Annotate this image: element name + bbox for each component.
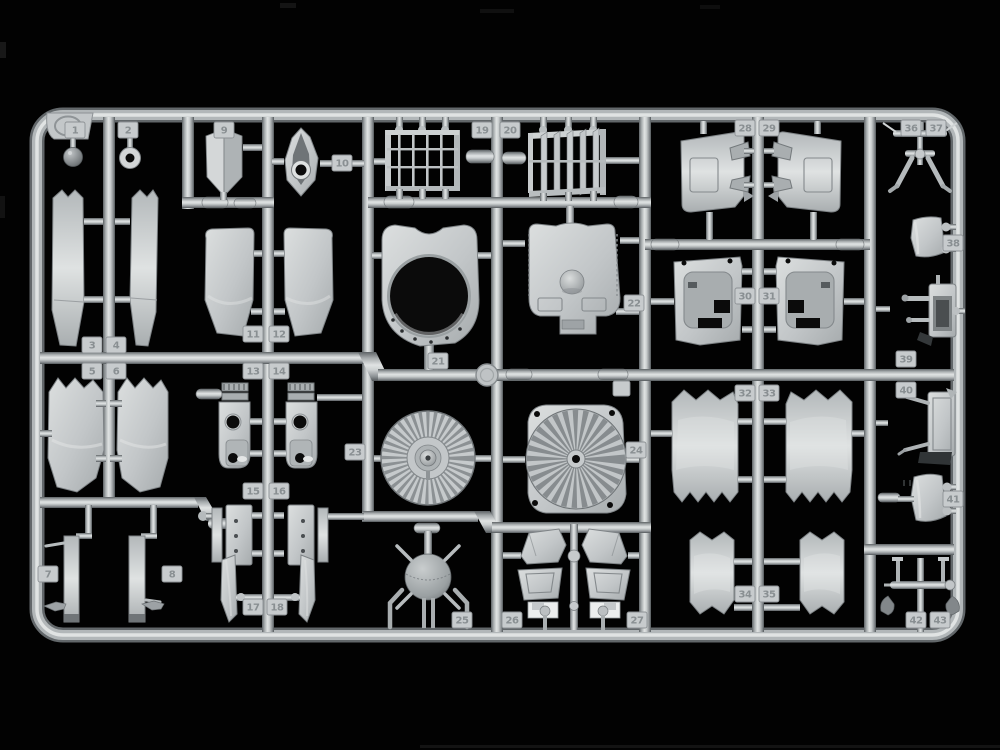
svg-text:41: 41 bbox=[947, 495, 960, 506]
sprue-photo: V bbox=[0, 0, 1000, 750]
part-intake-ring bbox=[372, 225, 491, 370]
svg-text:2: 2 bbox=[125, 126, 132, 137]
part-duct-panel-right bbox=[786, 390, 852, 502]
part-number-tag-31: 31 bbox=[759, 288, 779, 304]
part-number-tag-19: 19 bbox=[472, 122, 492, 138]
part-notched-panel-left bbox=[690, 532, 734, 614]
runner-vertical-a bbox=[103, 117, 115, 503]
svg-text:6: 6 bbox=[113, 367, 120, 378]
svg-text:10: 10 bbox=[336, 159, 349, 170]
part-number-tag-17: 17 bbox=[243, 599, 263, 615]
part-number-tag-13: 13 bbox=[243, 363, 263, 379]
svg-text:40: 40 bbox=[900, 386, 913, 397]
part-number-tag-36: 36 bbox=[901, 120, 921, 136]
part-number-tag-28: 28 bbox=[735, 120, 755, 136]
part-number-tag-1: 1 bbox=[65, 122, 85, 138]
part-number-tag-39: 39 bbox=[896, 351, 916, 367]
part-number-tag-23: 23 bbox=[345, 444, 365, 460]
svg-text:4: 4 bbox=[113, 341, 120, 352]
part-seat-frame bbox=[876, 388, 957, 487]
part-chevron-fairing bbox=[206, 129, 262, 200]
svg-text:38: 38 bbox=[947, 239, 960, 250]
part-number-tag-21: 21 bbox=[428, 353, 448, 369]
part-intake-outer-panel-left bbox=[205, 228, 254, 336]
runner-mid-left bbox=[40, 352, 366, 364]
svg-text:39: 39 bbox=[900, 355, 913, 366]
part-number-tag-10: 10 bbox=[332, 155, 352, 171]
part-blade-left bbox=[52, 190, 84, 346]
svg-text:12: 12 bbox=[273, 330, 286, 341]
part-actuator-right bbox=[288, 505, 364, 565]
part-number-tag-35: 35 bbox=[759, 586, 779, 602]
svg-text:27: 27 bbox=[631, 616, 644, 627]
svg-text:34: 34 bbox=[739, 590, 752, 601]
svg-text:9: 9 bbox=[221, 126, 228, 137]
svg-text:17: 17 bbox=[247, 603, 260, 614]
part-number-tag-7: 7 bbox=[38, 566, 58, 582]
svg-text:13: 13 bbox=[247, 367, 260, 378]
svg-text:11: 11 bbox=[247, 330, 260, 341]
part-splitter-right bbox=[582, 529, 639, 618]
svg-text:43: 43 bbox=[934, 616, 947, 627]
part-number-tag-34: 34 bbox=[735, 586, 755, 602]
svg-text:29: 29 bbox=[763, 124, 776, 135]
part-number-tag-38: 38 bbox=[943, 235, 963, 251]
svg-text:14: 14 bbox=[273, 367, 286, 378]
svg-text:18: 18 bbox=[271, 603, 284, 614]
part-number-tag-3: 3 bbox=[82, 337, 102, 353]
svg-text:36: 36 bbox=[905, 124, 918, 135]
part-duct-panel-left bbox=[672, 390, 738, 502]
svg-text:32: 32 bbox=[739, 389, 752, 400]
part-grille-flat bbox=[374, 117, 460, 199]
part-number-tag-20: 20 bbox=[500, 122, 520, 138]
part-number-tag-8: 8 bbox=[162, 566, 182, 582]
part-number-tag-26: 26 bbox=[502, 612, 522, 628]
svg-text:35: 35 bbox=[763, 590, 776, 601]
runner-lower-left bbox=[40, 497, 198, 508]
runner-right-strip bbox=[864, 544, 954, 555]
svg-text:37: 37 bbox=[930, 124, 943, 135]
part-number-tag-27: 27 bbox=[627, 612, 647, 628]
part-number-tag-43: 43 bbox=[930, 612, 950, 628]
svg-text:20: 20 bbox=[504, 126, 517, 137]
part-burner-can-right bbox=[776, 257, 844, 345]
part-seat-rail-right bbox=[286, 383, 317, 468]
svg-text:23: 23 bbox=[349, 448, 362, 459]
part-number-tag-12: 12 bbox=[269, 326, 289, 342]
part-number-tag-42: 42 bbox=[906, 612, 926, 628]
part-grille-louver bbox=[528, 117, 639, 201]
svg-text:15: 15 bbox=[247, 487, 260, 498]
svg-text:25: 25 bbox=[456, 616, 469, 627]
part-number-tag-15: 15 bbox=[243, 483, 263, 499]
svg-text:24: 24 bbox=[630, 446, 643, 457]
svg-text:30: 30 bbox=[739, 292, 752, 303]
svg-text:33: 33 bbox=[763, 389, 776, 400]
part-number-tag-14: 14 bbox=[269, 363, 289, 379]
svg-text:42: 42 bbox=[910, 616, 923, 627]
part-number-tag-4: 4 bbox=[106, 337, 126, 353]
part-aft-deck-panel bbox=[503, 206, 639, 334]
part-actuator-left bbox=[198, 505, 252, 565]
svg-text:16: 16 bbox=[273, 487, 286, 498]
sprue-illustration: V bbox=[0, 0, 1000, 750]
part-hook-left bbox=[44, 602, 66, 611]
part-number-tag-29: 29 bbox=[759, 120, 779, 136]
part-number-tag-32: 32 bbox=[735, 385, 755, 401]
part-burner-can-left bbox=[674, 257, 742, 345]
svg-text:31: 31 bbox=[763, 292, 776, 303]
part-number-tag-11: 11 bbox=[243, 326, 263, 342]
part-seat-rail-left bbox=[219, 383, 250, 468]
part-number-tag-25: 25 bbox=[452, 612, 472, 628]
svg-text:19: 19 bbox=[476, 126, 489, 137]
part-compressor-fan-small bbox=[374, 411, 491, 505]
part-console bbox=[876, 275, 965, 346]
part-number-tag-22: 22 bbox=[624, 295, 644, 311]
part-fin-right bbox=[299, 555, 315, 622]
part-compressor-fan-large bbox=[503, 405, 639, 513]
blank-tab bbox=[613, 381, 630, 396]
part-ramp-panel-left bbox=[48, 378, 104, 492]
part-number-tag-40: 40 bbox=[896, 382, 916, 398]
runner-lower-mid bbox=[362, 511, 478, 522]
svg-text:5: 5 bbox=[89, 367, 96, 378]
part-number-tag-30: 30 bbox=[735, 288, 755, 304]
part-fin-left bbox=[221, 555, 237, 622]
svg-text:1: 1 bbox=[72, 126, 79, 137]
part-blade-right bbox=[130, 190, 158, 346]
part-number-tag-24: 24 bbox=[626, 442, 646, 458]
part-number-tag-37: 37 bbox=[926, 120, 946, 136]
svg-text:28: 28 bbox=[739, 124, 752, 135]
svg-text:7: 7 bbox=[45, 570, 52, 581]
runner-mid-right bbox=[378, 369, 954, 381]
part-number-tag-9: 9 bbox=[214, 122, 234, 138]
mold-stamp bbox=[476, 364, 498, 386]
runner-vertical-b bbox=[182, 117, 194, 209]
part-number-tag-2: 2 bbox=[118, 122, 138, 138]
part-number-tag-16: 16 bbox=[269, 483, 289, 499]
svg-text:26: 26 bbox=[506, 616, 519, 627]
svg-text:21: 21 bbox=[432, 357, 445, 368]
part-washer bbox=[120, 136, 141, 169]
part-number-tag-5: 5 bbox=[82, 363, 102, 379]
part-ramp-panel-right bbox=[117, 378, 168, 492]
part-number-tag-41: 41 bbox=[943, 491, 963, 507]
svg-text:22: 22 bbox=[628, 299, 641, 310]
part-splitter-left bbox=[503, 529, 566, 618]
part-number-tag-33: 33 bbox=[759, 385, 779, 401]
part-notched-panel-right bbox=[800, 532, 844, 614]
svg-text:3: 3 bbox=[89, 341, 96, 352]
part-intake-outer-panel-right bbox=[284, 228, 333, 336]
part-ball bbox=[64, 136, 83, 167]
part-number-tag-6: 6 bbox=[106, 363, 126, 379]
part-number-tag-18: 18 bbox=[267, 599, 287, 615]
svg-text:8: 8 bbox=[169, 570, 176, 581]
